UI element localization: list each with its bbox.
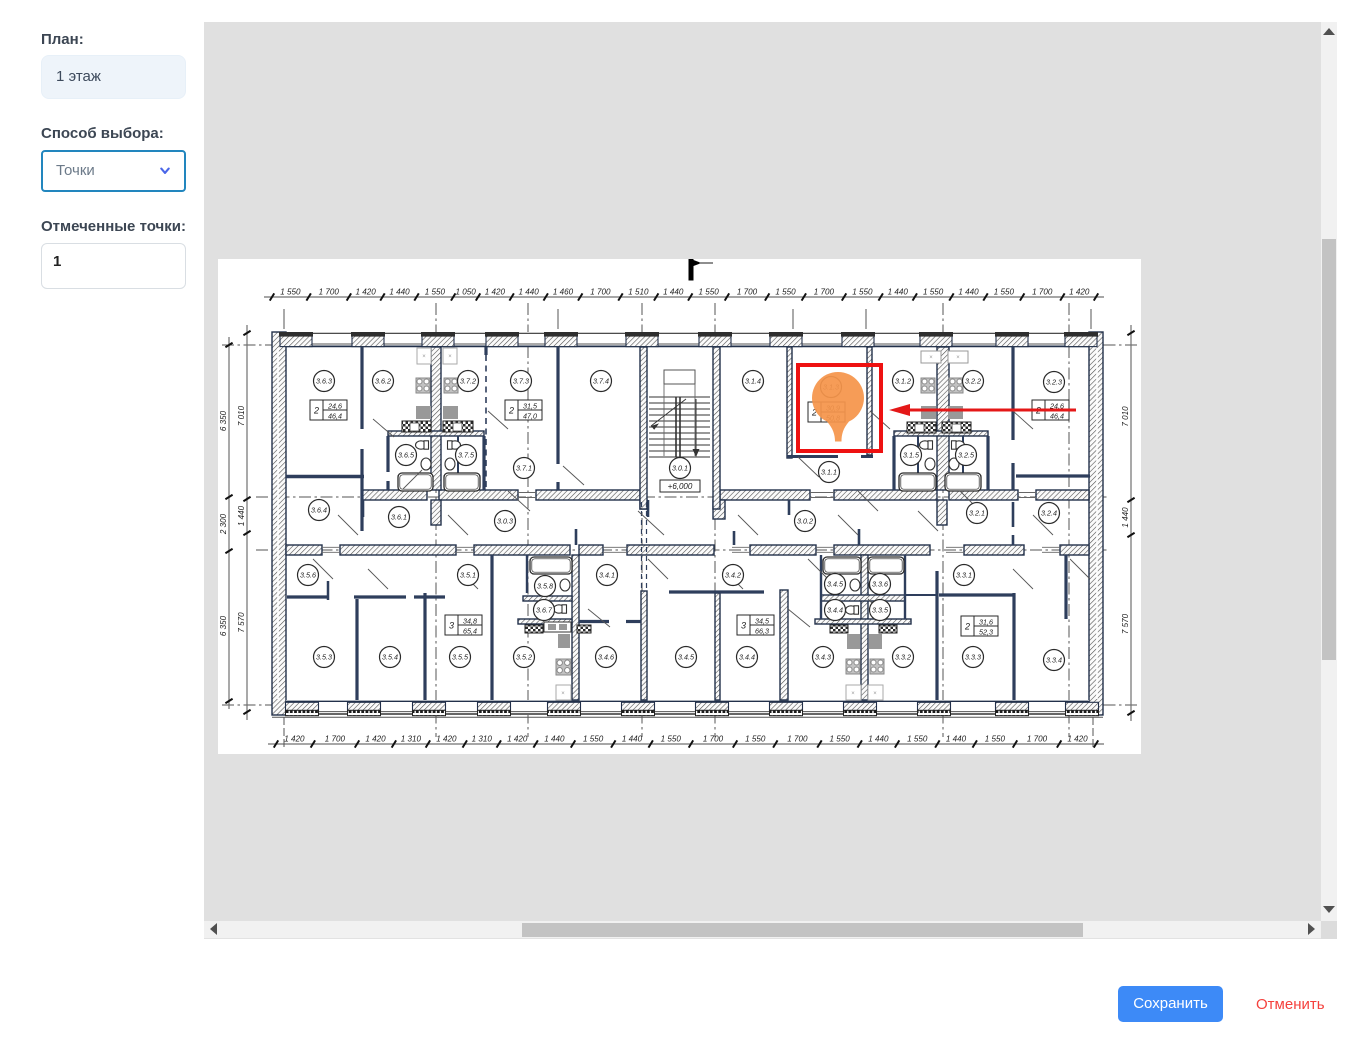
svg-text:31,5: 31,5 — [523, 402, 538, 411]
svg-text:1 420: 1 420 — [485, 287, 506, 296]
svg-text:1 440: 1 440 — [958, 287, 979, 296]
svg-text:1 700: 1 700 — [325, 734, 346, 743]
svg-text:3.6.3: 3.6.3 — [316, 377, 332, 386]
svg-text:46,4: 46,4 — [1050, 412, 1064, 421]
svg-text:1 440: 1 440 — [519, 287, 540, 296]
svg-text:1 310: 1 310 — [472, 734, 493, 743]
svg-text:1 440: 1 440 — [868, 734, 889, 743]
svg-text:3.2.3: 3.2.3 — [1046, 378, 1062, 387]
svg-text:3.7.4: 3.7.4 — [593, 377, 609, 386]
svg-text:1 440: 1 440 — [946, 734, 967, 743]
svg-text:3.0.1: 3.0.1 — [672, 464, 688, 473]
svg-text:1 510: 1 510 — [628, 287, 649, 296]
svg-text:3.4.4: 3.4.4 — [827, 606, 843, 615]
svg-text:3.6.7: 3.6.7 — [536, 606, 553, 615]
svg-text:3.5.6: 3.5.6 — [300, 571, 316, 580]
svg-text:1 420: 1 420 — [1069, 287, 1090, 296]
svg-text:1 440: 1 440 — [544, 734, 565, 743]
svg-text:31,6: 31,6 — [979, 618, 993, 627]
svg-text:1 420: 1 420 — [507, 734, 528, 743]
svg-text:3.6.5: 3.6.5 — [398, 451, 415, 460]
svg-text:3.3.6: 3.3.6 — [872, 580, 888, 589]
svg-text:1 700: 1 700 — [703, 734, 724, 743]
svg-text:7 010: 7 010 — [1121, 406, 1130, 427]
svg-text:3.7.3: 3.7.3 — [513, 377, 529, 386]
svg-text:6 350: 6 350 — [219, 615, 228, 636]
svg-text:3.4.3: 3.4.3 — [815, 653, 831, 662]
svg-text:1 550: 1 550 — [425, 287, 446, 296]
svg-text:3.3.2: 3.3.2 — [895, 653, 911, 662]
svg-text:3.5.8: 3.5.8 — [537, 582, 553, 591]
svg-text:3.4.1: 3.4.1 — [599, 571, 615, 580]
svg-text:1 440: 1 440 — [237, 505, 246, 526]
svg-text:52,3: 52,3 — [979, 628, 993, 637]
svg-text:+6,000: +6,000 — [668, 482, 693, 491]
svg-text:3.1.1: 3.1.1 — [821, 468, 837, 477]
svg-text:47,0: 47,0 — [523, 412, 537, 421]
svg-text:×: × — [851, 691, 855, 697]
svg-text:3: 3 — [741, 621, 746, 631]
svg-text:3.6.2: 3.6.2 — [375, 377, 391, 386]
svg-text:6 350: 6 350 — [219, 410, 228, 431]
svg-text:1 550: 1 550 — [923, 287, 944, 296]
svg-text:3.4.5: 3.4.5 — [678, 653, 695, 662]
svg-text:1 420: 1 420 — [284, 734, 305, 743]
svg-text:×: × — [422, 354, 426, 360]
svg-text:3.3.1: 3.3.1 — [956, 571, 972, 580]
svg-text:3.0.3: 3.0.3 — [497, 517, 513, 526]
svg-text:1 440: 1 440 — [1121, 507, 1130, 528]
svg-text:3.7.2: 3.7.2 — [460, 377, 476, 386]
svg-text:1 550: 1 550 — [661, 734, 682, 743]
svg-text:3.1.4: 3.1.4 — [745, 377, 761, 386]
svg-text:1 550: 1 550 — [698, 287, 719, 296]
svg-text:1 440: 1 440 — [622, 734, 643, 743]
svg-text:3.5.3: 3.5.3 — [316, 653, 332, 662]
svg-text:1 700: 1 700 — [1027, 734, 1048, 743]
svg-text:3.3.4: 3.3.4 — [1046, 656, 1062, 665]
svg-text:×: × — [561, 691, 565, 697]
svg-text:1 550: 1 550 — [985, 734, 1006, 743]
svg-text:3.5.2: 3.5.2 — [516, 653, 532, 662]
svg-text:3.7.5: 3.7.5 — [458, 451, 475, 460]
svg-text:3.3.3: 3.3.3 — [965, 653, 981, 662]
svg-text:46,4: 46,4 — [328, 412, 342, 421]
svg-text:1 550: 1 550 — [994, 287, 1015, 296]
svg-text:3.2.5: 3.2.5 — [958, 451, 975, 460]
svg-text:3.5.1: 3.5.1 — [460, 571, 476, 580]
svg-text:1 310: 1 310 — [401, 734, 422, 743]
svg-text:7 570: 7 570 — [237, 612, 246, 633]
svg-text:1 550: 1 550 — [829, 734, 850, 743]
svg-text:3.1.5: 3.1.5 — [903, 451, 920, 460]
svg-text:1 420: 1 420 — [1067, 734, 1088, 743]
svg-text:3: 3 — [449, 621, 454, 631]
svg-text:1 700: 1 700 — [319, 287, 340, 296]
svg-text:1 550: 1 550 — [852, 287, 873, 296]
svg-text:7 010: 7 010 — [237, 405, 246, 426]
svg-text:×: × — [448, 354, 452, 360]
svg-text:3.2.2: 3.2.2 — [965, 377, 981, 386]
svg-text:3.5.5: 3.5.5 — [452, 653, 469, 662]
svg-text:3.4.5: 3.4.5 — [827, 580, 844, 589]
svg-text:3.4.2: 3.4.2 — [725, 571, 741, 580]
svg-text:1 700: 1 700 — [737, 287, 758, 296]
svg-text:3.0.2: 3.0.2 — [797, 517, 813, 526]
svg-text:24,6: 24,6 — [327, 402, 342, 411]
svg-text:1 550: 1 550 — [583, 734, 604, 743]
svg-text:1 440: 1 440 — [389, 287, 410, 296]
svg-text:3.2.1: 3.2.1 — [969, 509, 985, 518]
svg-text:1 700: 1 700 — [787, 734, 808, 743]
svg-text:3.4.4: 3.4.4 — [739, 653, 755, 662]
svg-text:1 550: 1 550 — [280, 287, 301, 296]
svg-text:3.5.4: 3.5.4 — [382, 653, 398, 662]
svg-text:3.7.1: 3.7.1 — [516, 464, 532, 473]
svg-text:1 420: 1 420 — [356, 287, 377, 296]
svg-text:34,5: 34,5 — [755, 617, 770, 626]
svg-text:1 420: 1 420 — [436, 734, 457, 743]
svg-text:3.6.1: 3.6.1 — [391, 513, 407, 522]
svg-text:2: 2 — [508, 406, 514, 416]
svg-text:×: × — [873, 691, 877, 697]
svg-text:1 050: 1 050 — [456, 287, 477, 296]
svg-text:34,8: 34,8 — [463, 617, 477, 626]
svg-text:1 550: 1 550 — [907, 734, 928, 743]
svg-text:2 300: 2 300 — [219, 513, 228, 535]
svg-text:3.3.5: 3.3.5 — [872, 606, 889, 615]
svg-text:7 570: 7 570 — [1121, 613, 1130, 634]
svg-text:1 550: 1 550 — [745, 734, 766, 743]
svg-text:1 440: 1 440 — [888, 287, 909, 296]
svg-text:3.6.4: 3.6.4 — [311, 506, 327, 515]
svg-text:2: 2 — [964, 622, 970, 632]
svg-text:3.4.6: 3.4.6 — [598, 653, 614, 662]
svg-text:66,3: 66,3 — [755, 627, 769, 636]
svg-text:1 440: 1 440 — [663, 287, 684, 296]
svg-text:65,4: 65,4 — [463, 627, 477, 636]
svg-text:1 700: 1 700 — [590, 287, 611, 296]
svg-text:3.1.2: 3.1.2 — [895, 377, 911, 386]
svg-text:3.2.4: 3.2.4 — [1041, 509, 1057, 518]
svg-text:×: × — [929, 355, 933, 361]
svg-text:1 460: 1 460 — [553, 287, 574, 296]
svg-text:2: 2 — [313, 406, 319, 416]
svg-text:×: × — [956, 355, 960, 361]
svg-text:1 700: 1 700 — [814, 287, 835, 296]
svg-text:1 550: 1 550 — [775, 287, 796, 296]
svg-text:1 700: 1 700 — [1032, 287, 1053, 296]
svg-text:1 420: 1 420 — [365, 734, 386, 743]
